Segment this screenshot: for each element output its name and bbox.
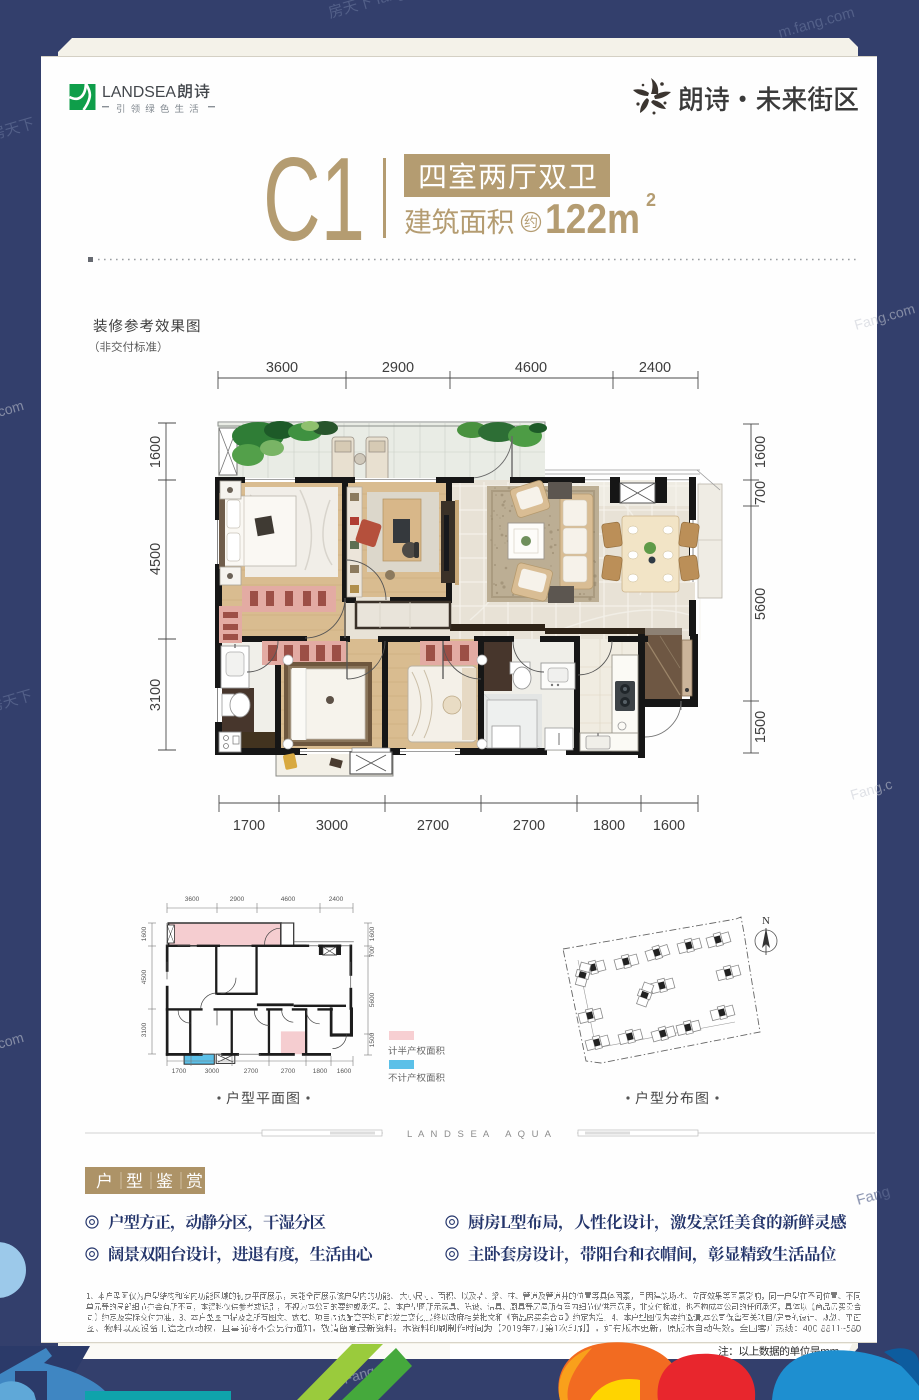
svg-text:1600: 1600 [148,436,164,468]
svg-text:1800: 1800 [593,818,625,834]
svg-text:2700: 2700 [281,1068,296,1075]
svg-text:3600: 3600 [266,360,298,376]
svg-text:2700: 2700 [513,818,545,834]
svg-text:3000: 3000 [205,1068,220,1075]
svg-text:4500: 4500 [148,543,164,575]
svg-text:1600: 1600 [653,818,685,834]
svg-text:700: 700 [753,481,769,505]
svg-text:1500: 1500 [753,711,769,743]
svg-text:L A N D S E A A Q U A: L A N D S E A A Q U A [407,1129,553,1140]
svg-text:1600: 1600 [753,436,769,468]
svg-text:N: N [762,915,770,927]
svg-text:1600: 1600 [337,1068,352,1075]
svg-text:4500: 4500 [141,969,148,984]
svg-text:LANDSEA: LANDSEA [102,84,176,101]
svg-text:3600: 3600 [185,896,200,903]
svg-text:1700: 1700 [172,1068,187,1075]
svg-text:122m: 122m [545,195,640,242]
svg-text:1600: 1600 [141,926,148,941]
svg-text:3000: 3000 [316,818,348,834]
svg-text:2900: 2900 [382,360,414,376]
svg-text:1600: 1600 [369,926,376,941]
svg-text:C1: C1 [263,133,365,266]
svg-text:1700: 1700 [233,818,265,834]
svg-text:3100: 3100 [141,1022,148,1037]
svg-text:1800: 1800 [313,1068,328,1075]
svg-text:3100: 3100 [148,679,164,711]
svg-text:4600: 4600 [281,896,296,903]
svg-text:5600: 5600 [753,588,769,620]
svg-text:2700: 2700 [417,818,449,834]
svg-text:2400: 2400 [639,360,671,376]
svg-text:2400: 2400 [329,896,344,903]
svg-text:4600: 4600 [515,360,547,376]
svg-text:2900: 2900 [230,896,245,903]
svg-text:2700: 2700 [244,1068,259,1075]
svg-text:1500: 1500 [369,1032,376,1047]
svg-text:2: 2 [646,190,656,210]
svg-text:700: 700 [369,946,376,957]
svg-text:5600: 5600 [369,992,376,1007]
